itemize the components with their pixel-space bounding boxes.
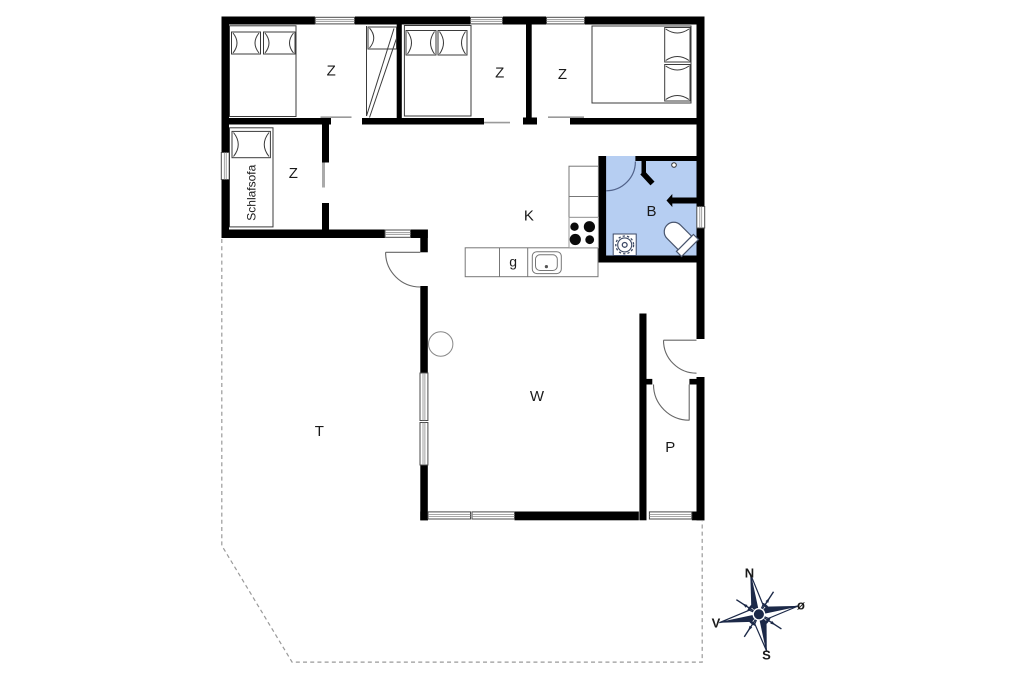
svg-text:N: N (745, 566, 754, 581)
svg-text:Z: Z (558, 66, 567, 83)
svg-text:T: T (315, 423, 324, 440)
svg-text:K: K (524, 207, 534, 224)
svg-text:V: V (712, 616, 721, 631)
svg-text:S: S (762, 648, 771, 663)
svg-text:Z: Z (289, 165, 298, 182)
svg-text:Z: Z (495, 65, 504, 82)
svg-text:ø: ø (797, 598, 805, 613)
svg-text:Z: Z (327, 62, 336, 79)
svg-text:P: P (665, 439, 675, 456)
svg-text:W: W (530, 388, 545, 405)
svg-text:g: g (509, 254, 517, 270)
svg-text:B: B (646, 203, 656, 220)
svg-text:Schlafsofa: Schlafsofa (245, 164, 259, 220)
